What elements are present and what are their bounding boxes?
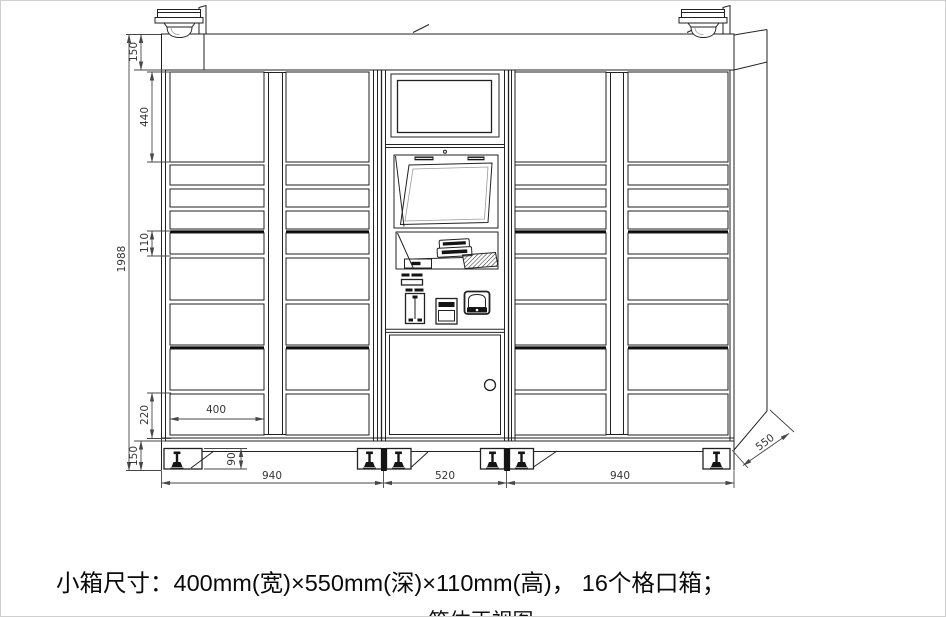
dim-right-cabinet-width: 940 bbox=[610, 470, 630, 482]
locker-door bbox=[170, 189, 264, 207]
side-depth-face bbox=[734, 30, 767, 451]
locker-door bbox=[170, 211, 264, 229]
surveillance-camera-left-icon bbox=[155, 6, 206, 38]
locker-door bbox=[628, 165, 728, 185]
locker-door bbox=[628, 304, 728, 345]
locker-door bbox=[515, 233, 606, 254]
illegible-label-marks bbox=[402, 274, 424, 292]
dim-foot-height: 90 bbox=[226, 452, 238, 465]
locker-door bbox=[628, 349, 728, 390]
locker-door-grid bbox=[170, 72, 728, 468]
locker-door bbox=[628, 233, 728, 254]
dim-large-box-height: 440 bbox=[139, 107, 151, 127]
locker-door bbox=[286, 165, 369, 185]
locker-door bbox=[628, 211, 728, 229]
locker-door bbox=[515, 349, 606, 390]
locker-door bbox=[628, 258, 728, 300]
qr-scanner bbox=[465, 292, 490, 315]
speaker-grille-icon bbox=[463, 253, 499, 269]
locker-door bbox=[170, 304, 264, 345]
console-camera-dot bbox=[444, 150, 447, 153]
door-lock-icon bbox=[485, 380, 496, 391]
locker-door bbox=[170, 165, 264, 185]
locker-door bbox=[286, 211, 369, 229]
locker-door bbox=[170, 349, 264, 390]
dim-medium-box-height: 220 bbox=[139, 405, 151, 425]
leveling-foot-icon bbox=[368, 454, 370, 463]
leveling-foot-icon bbox=[520, 454, 522, 463]
dim-left-cabinet-width: 940 bbox=[262, 470, 282, 482]
card-reader bbox=[436, 299, 457, 325]
locker-door bbox=[286, 233, 369, 254]
locker-door bbox=[170, 258, 264, 300]
dim-console-width: 520 bbox=[435, 470, 455, 482]
cash-module bbox=[406, 294, 425, 324]
locker-door bbox=[515, 394, 606, 435]
locker-door bbox=[286, 72, 369, 162]
dim-top-panel-height: 150 bbox=[128, 42, 140, 62]
center-console bbox=[386, 74, 504, 435]
locker-door bbox=[515, 304, 606, 345]
locker-door bbox=[286, 394, 369, 435]
leveling-foot-icon bbox=[176, 454, 178, 463]
box-size-specifications: 小箱尺寸：400mm(宽)×550mm(深)×110mm(高)， 16个格口箱；… bbox=[56, 506, 734, 617]
locker-door bbox=[170, 72, 264, 162]
top-beam bbox=[162, 25, 735, 71]
base-plinth bbox=[164, 448, 730, 471]
leveling-foot-icon bbox=[397, 454, 399, 463]
locker-door bbox=[628, 189, 728, 207]
dim-base-height: 150 bbox=[128, 446, 140, 466]
locker-door bbox=[170, 233, 264, 254]
dim-total-height: 1988 bbox=[116, 246, 128, 273]
dim-compartment-width: 400 bbox=[206, 404, 226, 416]
ad-display bbox=[391, 74, 499, 137]
keyboard-tray bbox=[396, 232, 498, 269]
drawing-caption-text: 箱体正视图 bbox=[429, 610, 534, 617]
receipt-slot bbox=[402, 280, 423, 286]
drawing-caption-clipped: 箱体正视图 bbox=[331, 605, 631, 617]
leveling-foot-icon bbox=[715, 454, 717, 463]
locker-door bbox=[515, 165, 606, 185]
touchscreen bbox=[394, 155, 498, 228]
locker-door bbox=[628, 394, 728, 435]
locker-door bbox=[515, 258, 606, 300]
service-door bbox=[390, 335, 501, 435]
locker-door bbox=[286, 304, 369, 345]
locker-door bbox=[515, 72, 606, 162]
spec-line-small-box: 小箱尺寸：400mm(宽)×550mm(深)×110mm(高)， 16个格口箱； bbox=[56, 568, 734, 599]
locker-door bbox=[515, 189, 606, 207]
locker-door bbox=[286, 189, 369, 207]
dim-small-box-height: 110 bbox=[139, 233, 151, 253]
locker-door bbox=[286, 258, 369, 300]
locker-door bbox=[515, 211, 606, 229]
locker-door bbox=[286, 349, 369, 390]
leveling-foot-icon bbox=[491, 454, 493, 463]
blueprint-canvas: 150 440 110 1988 220 150 90 400 940 520 … bbox=[0, 0, 946, 617]
surveillance-camera-right-icon bbox=[679, 6, 730, 38]
locker-door bbox=[628, 72, 728, 162]
